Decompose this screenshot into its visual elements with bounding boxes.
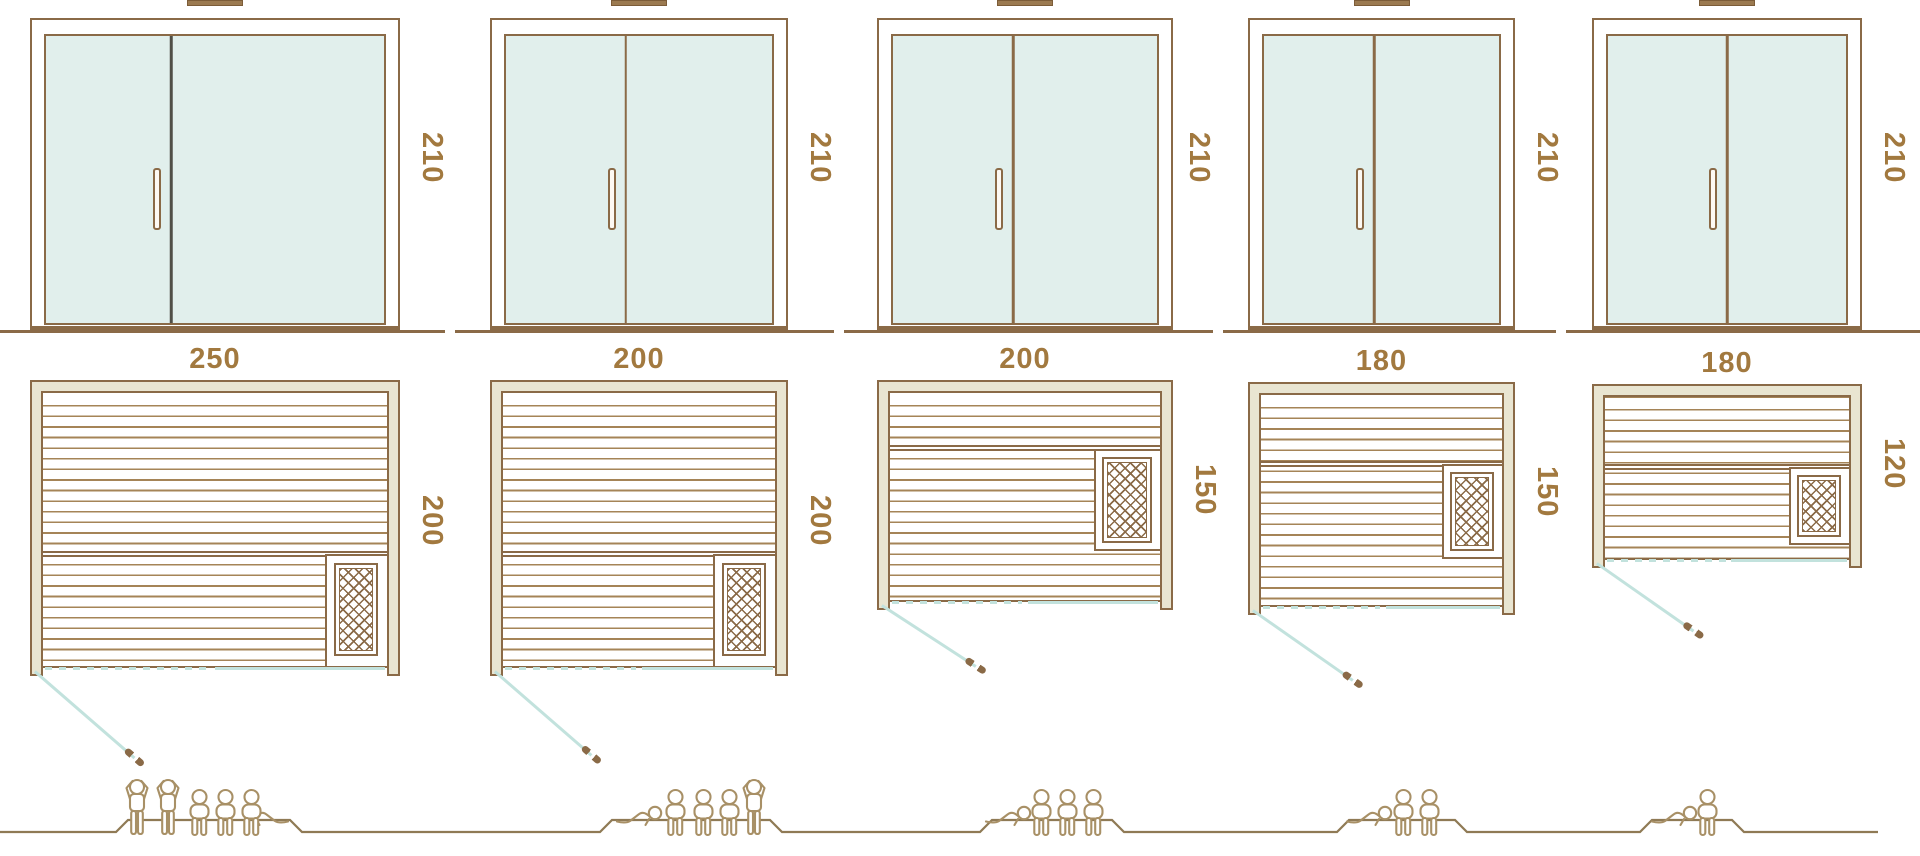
lie-figure [1652, 807, 1696, 825]
floor-plan: 200 150 [877, 380, 1173, 602]
capacity-figures-strip [0, 768, 1920, 856]
sit-figure [721, 790, 739, 835]
sit-figure [191, 790, 209, 835]
door-opening-dashed [1607, 559, 1726, 562]
bench-planks [1261, 395, 1502, 607]
lie-figure [617, 807, 661, 825]
left-wall-post [490, 391, 503, 676]
door-swing-line [881, 604, 976, 667]
door-elevation [30, 18, 400, 330]
plan-depth-label: 150 [1190, 464, 1219, 515]
sit-figure [1085, 790, 1103, 835]
glass-door-panels [1606, 34, 1848, 325]
sit-figure [1059, 790, 1077, 835]
floor-plan: 250 200 [30, 380, 400, 668]
door-sill [1592, 326, 1862, 330]
heater-rocks-crosshatch [1107, 462, 1147, 538]
glass-door-panels [44, 34, 386, 325]
sit-figure [1395, 790, 1413, 835]
plan-width-label: 200 [877, 345, 1173, 374]
door-opening-dashed [1263, 606, 1380, 609]
door-elevation [490, 18, 788, 330]
heater-stove [722, 563, 766, 656]
door-elevation [877, 18, 1173, 330]
sauna-column-180x150: 210 180 150 [1248, 0, 1515, 856]
sit-figure [667, 790, 685, 835]
sit-figure [217, 790, 235, 835]
floor-plan: 180 120 [1592, 384, 1862, 560]
right-wall-post [387, 391, 400, 676]
heater-area [1442, 464, 1502, 559]
door-height-label: 210 [1184, 132, 1213, 183]
plan-width-label: 180 [1248, 347, 1515, 376]
floor-plan: 200 200 [490, 380, 788, 668]
front-glass-wall [642, 667, 773, 670]
sit-figure [1033, 790, 1051, 835]
glass-door-panels [1262, 34, 1501, 325]
heater-rocks-crosshatch [727, 568, 761, 651]
bench-planks [503, 393, 775, 668]
stand-figure [744, 780, 765, 834]
sauna-column-250x200: 210 250 200 [30, 0, 400, 856]
roof-vent-cap [187, 0, 243, 6]
back-wall [877, 380, 1173, 393]
sit-figure [695, 790, 713, 835]
door-opening-dashed [892, 601, 1022, 604]
door-sill [1248, 326, 1515, 330]
left-wall-post [30, 391, 43, 676]
plan-width-label: 180 [1592, 349, 1862, 378]
sit-figure [1699, 790, 1717, 835]
bench-planks [43, 393, 387, 668]
front-glass-wall [1386, 606, 1500, 609]
door-swing-line [1596, 562, 1694, 632]
right-wall-post [1849, 395, 1862, 568]
door-sill [490, 326, 788, 330]
door-handle [153, 168, 161, 230]
right-wall-post [775, 391, 788, 676]
sit-figure [1421, 790, 1439, 835]
door-divider-line [624, 36, 627, 323]
plan-width-label: 200 [490, 345, 788, 374]
heater-area [1094, 449, 1160, 551]
door-handle [995, 168, 1003, 230]
door-opening-dashed [505, 667, 636, 670]
heater-area [1789, 467, 1849, 545]
plan-depth-label: 150 [1532, 466, 1561, 517]
front-glass-wall [1028, 601, 1158, 604]
lie-figure [986, 807, 1030, 825]
heater-stove [1450, 472, 1494, 551]
sit-figure [243, 790, 261, 835]
left-wall-post [1592, 395, 1605, 568]
lie-figure [1347, 807, 1391, 825]
door-divider-line [1726, 36, 1729, 323]
sauna-column-200x150: 210 200 150 [877, 0, 1173, 856]
heater-stove [1102, 457, 1152, 543]
roof-vent-cap [1699, 0, 1755, 6]
front-glass-wall [1731, 559, 1847, 562]
heater-stove [1797, 475, 1841, 537]
roof-vent-cap [1354, 0, 1410, 6]
back-wall [1592, 384, 1862, 397]
plan-width-label: 250 [30, 345, 400, 374]
back-wall [1248, 382, 1515, 395]
door-handle [1709, 168, 1717, 230]
front-glass-wall [215, 667, 385, 670]
plan-depth-label: 120 [1879, 438, 1908, 489]
heater-stove [334, 563, 378, 656]
back-wall [30, 380, 400, 393]
sauna-column-200x200: 210 200 200 [490, 0, 788, 856]
door-handle [608, 168, 616, 230]
plan-depth-label: 200 [417, 495, 446, 546]
door-elevation [1248, 18, 1515, 330]
bench-planks [890, 393, 1160, 602]
left-wall-post [877, 391, 890, 610]
heater-area [713, 554, 775, 666]
door-handle [1356, 168, 1364, 230]
back-wall [490, 380, 788, 393]
right-wall-post [1502, 393, 1515, 615]
sauna-column-180x120: 210 180 120 [1592, 0, 1862, 856]
door-elevation [1592, 18, 1862, 330]
heater-rocks-crosshatch [1455, 477, 1489, 546]
stand-figure [127, 780, 148, 834]
door-divider-line [1373, 36, 1376, 323]
left-wall-post [1248, 393, 1261, 615]
door-divider-line [1012, 36, 1015, 323]
door-sill [30, 326, 400, 330]
door-height-label: 210 [417, 132, 446, 183]
door-height-label: 210 [1879, 132, 1908, 183]
bench-planks [1605, 397, 1849, 560]
door-opening-dashed [45, 667, 208, 670]
heater-rocks-crosshatch [339, 568, 373, 651]
right-wall-post [1160, 391, 1173, 610]
glass-door-panels [891, 34, 1159, 325]
plan-depth-label: 200 [805, 495, 834, 546]
roof-vent-cap [611, 0, 667, 6]
glass-door-panels [504, 34, 774, 325]
door-height-label: 210 [1532, 132, 1561, 183]
door-swing-line [34, 670, 135, 758]
door-divider-line [170, 36, 173, 323]
door-height-label: 210 [805, 132, 834, 183]
sauna-size-diagram: 210 250 200 [0, 0, 1920, 856]
door-sill [877, 326, 1173, 330]
floor-plan: 180 150 [1248, 382, 1515, 607]
roof-vent-cap [997, 0, 1053, 6]
door-swing-line [494, 670, 592, 756]
heater-area [325, 554, 387, 666]
stand-figure [158, 780, 179, 834]
heater-rocks-crosshatch [1802, 480, 1836, 532]
door-swing-line [1252, 609, 1353, 681]
